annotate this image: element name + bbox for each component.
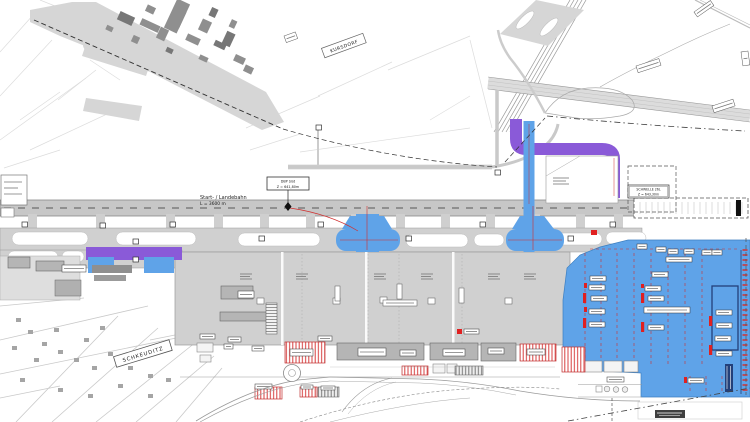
site-plan-svg: Start- / Landebahn L = 3600 m DBP Süd Z … — [0, 0, 750, 422]
village-label-schkeuditz: SCHKEUDITZ — [114, 340, 173, 367]
village-label-kursdorf: KURSDORF — [321, 33, 366, 57]
threshold-marker: SCHWELLE 26L Z = 643,30m — [628, 185, 669, 198]
threshold-line2: Z = 643,30m — [638, 193, 659, 197]
dbp-line1: DBP Süd — [281, 180, 296, 184]
dbp-line2: Z = 641,80m — [277, 185, 300, 189]
new-apron-blue — [563, 240, 750, 397]
plan-canvas: Start- / Landebahn L = 3600 m DBP Süd Z … — [0, 0, 750, 422]
old-terminal-area — [30, 0, 284, 130]
runway-length-label: L = 3600 m — [200, 201, 226, 207]
threshold-line1: SCHWELLE 26L — [636, 187, 660, 191]
runway-name-label: Start- / Landebahn — [200, 195, 247, 201]
